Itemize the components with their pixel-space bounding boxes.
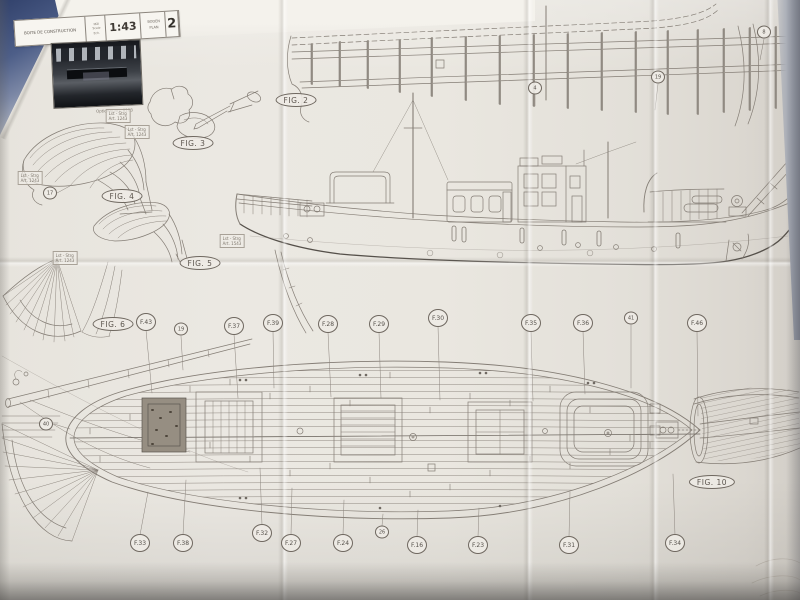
paper-edge-left-shadow xyxy=(0,0,10,600)
spar-rigging-detail xyxy=(2,339,252,472)
side-elevation-drawing xyxy=(236,93,800,333)
fold-crease-vertical xyxy=(649,0,659,600)
fig10-roller-detail xyxy=(690,388,800,464)
fig2-longitudinal-section xyxy=(287,4,798,126)
fold-crease-vertical xyxy=(764,0,774,600)
scale-value: 1:43 xyxy=(105,13,141,40)
photo-highlight xyxy=(83,71,109,80)
fig3-tool-detail xyxy=(148,86,262,138)
fold-crease-horizontal xyxy=(0,257,800,267)
fig4-bow-planking xyxy=(22,123,152,214)
stern-fan-diagram xyxy=(3,259,122,342)
scale-sub-labels: Mål Scale Ech. xyxy=(85,15,106,41)
plan-sheet-photo: BOITE DE CONSTRUCTION Mål Scale Ech. 1:4… xyxy=(0,0,800,600)
model-photo-inset xyxy=(51,39,144,109)
fold-crease-vertical xyxy=(278,0,288,600)
sheet-number: 2 xyxy=(165,11,180,37)
stern-fan-diagram-2 xyxy=(2,416,98,541)
paper-edge-right-shadow xyxy=(786,0,800,600)
photo-planking-detail xyxy=(56,45,136,61)
deck-plan-drawing xyxy=(66,361,700,519)
paper-edge-bottom-shadow xyxy=(0,562,800,600)
fold-crease-vertical xyxy=(523,0,533,600)
plan-type-label: BODEN PLAN xyxy=(140,12,166,38)
